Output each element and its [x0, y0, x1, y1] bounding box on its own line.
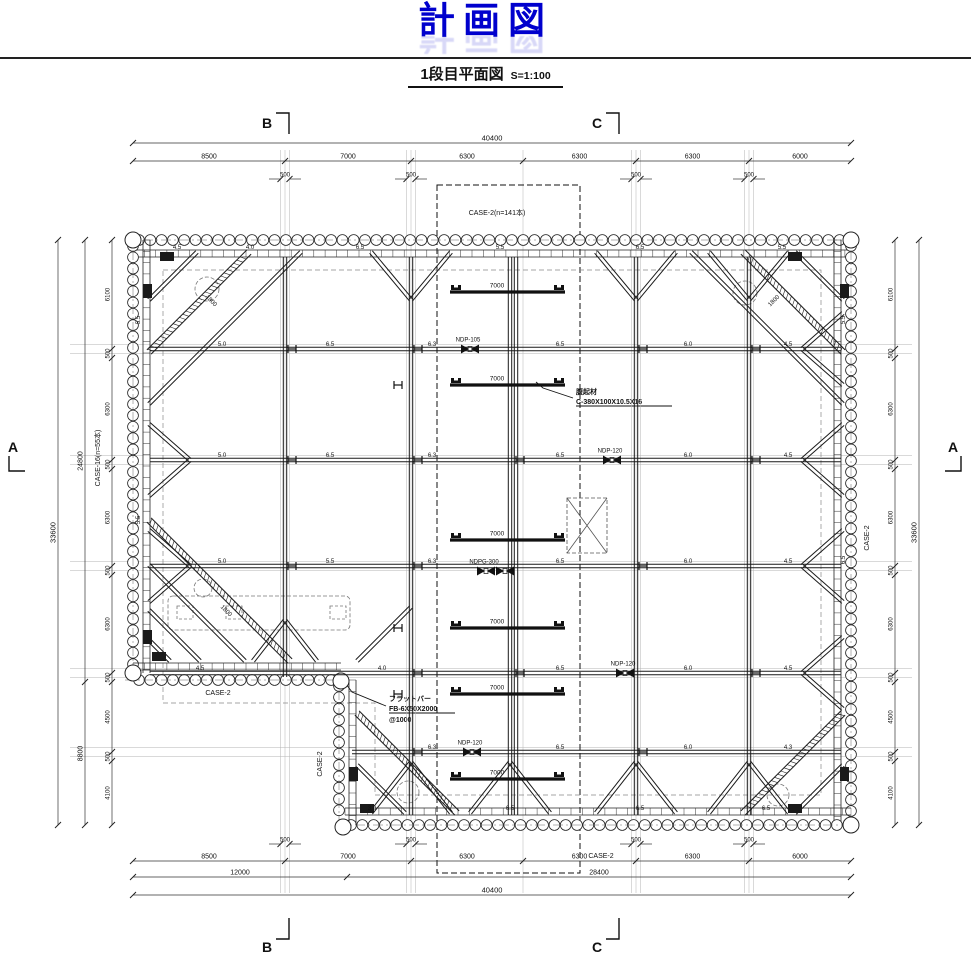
svg-text:6300: 6300 — [685, 854, 701, 861]
svg-text:6.5: 6.5 — [841, 555, 847, 564]
section-marker-c-top: C — [592, 115, 602, 131]
svg-text:4.3: 4.3 — [784, 745, 793, 751]
svg-text:6300: 6300 — [572, 854, 588, 861]
svg-text:6000: 6000 — [792, 854, 808, 861]
svg-text:8500: 8500 — [201, 154, 217, 161]
svg-text:NDP-120: NDP-120 — [458, 741, 483, 747]
svg-text:6.3: 6.3 — [428, 559, 437, 565]
channel-label-1: 腹起材 — [575, 387, 597, 396]
svg-text:5.5: 5.5 — [841, 315, 847, 324]
svg-text:500: 500 — [406, 838, 417, 844]
svg-text:500: 500 — [631, 838, 642, 844]
svg-text:500: 500 — [106, 751, 112, 762]
svg-text:6.5: 6.5 — [636, 245, 645, 251]
svg-text:6300: 6300 — [459, 854, 475, 861]
svg-text:6.3: 6.3 — [428, 453, 437, 459]
svg-text:NDP-105: NDP-105 — [456, 338, 481, 344]
svg-text:500: 500 — [889, 751, 895, 762]
case-label-bottom: CASE-2 — [588, 853, 613, 860]
svg-text:6300: 6300 — [889, 510, 895, 524]
svg-text:3.0: 3.0 — [368, 806, 377, 812]
svg-text:NDP-120: NDP-120 — [611, 662, 636, 668]
panel-labels: 4.54.06.55.56.55.55.06.56.36.56.04.55.06… — [136, 245, 847, 812]
svg-text:7000: 7000 — [490, 531, 505, 538]
svg-text:6.0: 6.0 — [684, 453, 693, 459]
svg-text:28400: 28400 — [589, 870, 609, 877]
svg-text:6300: 6300 — [106, 510, 112, 524]
svg-text:33600: 33600 — [49, 522, 58, 543]
case-label-top: CASE-2(n=141本) — [469, 208, 526, 217]
svg-text:6.5: 6.5 — [556, 666, 565, 672]
svg-text:4100: 4100 — [106, 786, 112, 800]
svg-text:6.5: 6.5 — [556, 342, 565, 348]
svg-text:6100: 6100 — [889, 287, 895, 301]
drawing-sheet: 計画図 計画図 1段目平面図S=1:100 B C B C A A CASE-2… — [0, 0, 971, 969]
svg-text:6.5: 6.5 — [326, 453, 335, 459]
section-bracket — [9, 456, 25, 471]
svg-text:4.5: 4.5 — [784, 559, 793, 565]
svg-text:6.5: 6.5 — [762, 806, 771, 812]
svg-text:6000: 6000 — [792, 154, 808, 161]
svg-text:4500: 4500 — [106, 710, 112, 724]
svg-text:6300: 6300 — [572, 154, 588, 161]
svg-text:4.0: 4.0 — [378, 666, 387, 672]
svg-text:500: 500 — [889, 565, 895, 576]
svg-text:40400: 40400 — [482, 886, 503, 895]
svg-text:NDP-120: NDP-120 — [598, 449, 623, 455]
svg-text:8500: 8500 — [201, 854, 217, 861]
section-marker-a-right: A — [948, 439, 958, 455]
svg-text:5.5: 5.5 — [136, 515, 142, 524]
svg-text:7000: 7000 — [340, 854, 356, 861]
section-bracket — [276, 113, 289, 134]
svg-text:6.0: 6.0 — [684, 666, 693, 672]
svg-text:6.5: 6.5 — [556, 745, 565, 751]
svg-text:6100: 6100 — [106, 287, 112, 301]
svg-text:5.5: 5.5 — [136, 315, 142, 324]
case-label-step-lower: CASE-2 — [205, 690, 230, 697]
svg-text:5.0: 5.0 — [218, 559, 227, 565]
svg-text:12000: 12000 — [230, 870, 250, 877]
svg-text:500: 500 — [889, 459, 895, 470]
svg-text:6.5: 6.5 — [556, 453, 565, 459]
svg-text:500: 500 — [631, 173, 642, 179]
svg-text:6.0: 6.0 — [684, 342, 693, 348]
svg-text:40400: 40400 — [482, 134, 503, 143]
case-label-left: CASE-16(n=55本) — [93, 430, 102, 487]
svg-text:500: 500 — [280, 173, 291, 179]
section-marker-a-left: A — [8, 439, 18, 455]
svg-text:7000: 7000 — [490, 685, 505, 692]
channel-label-2: C-380X100X10.5X16 — [576, 399, 642, 406]
svg-text:500: 500 — [106, 672, 112, 683]
svg-text:5.5: 5.5 — [326, 559, 335, 565]
svg-text:7000: 7000 — [490, 770, 505, 777]
flat-bar-label-1: フラットバー — [389, 695, 431, 703]
case-labels: CASE-2(n=141本) CASE-16(n=55本) CASE-2 CAS… — [93, 208, 871, 860]
svg-text:6300: 6300 — [459, 154, 475, 161]
svg-text:4.0: 4.0 — [246, 245, 255, 251]
svg-text:6300: 6300 — [685, 154, 701, 161]
svg-text:4.5: 4.5 — [173, 245, 182, 251]
case-label-right: CASE-2 — [864, 525, 871, 550]
section-bracket — [945, 456, 961, 471]
svg-text:7000: 7000 — [490, 619, 505, 626]
svg-text:6.3: 6.3 — [428, 745, 437, 751]
svg-text:5.5: 5.5 — [778, 245, 787, 251]
svg-text:6.0: 6.0 — [684, 745, 693, 751]
svg-text:5.0: 5.0 — [218, 453, 227, 459]
svg-text:500: 500 — [744, 838, 755, 844]
svg-text:6.0: 6.0 — [684, 559, 693, 565]
svg-text:4.5: 4.5 — [784, 666, 793, 672]
svg-text:33600: 33600 — [910, 522, 919, 543]
flat-bar-label-3: @1000 — [389, 717, 412, 724]
section-bracket — [606, 113, 619, 134]
svg-text:6300: 6300 — [106, 402, 112, 416]
svg-text:6.5: 6.5 — [326, 342, 335, 348]
svg-text:6300: 6300 — [889, 617, 895, 631]
deck-bars: 700070007000700070007000 — [450, 283, 565, 780]
svg-text:4.5: 4.5 — [196, 666, 205, 672]
svg-text:7000: 7000 — [490, 376, 505, 383]
svg-text:4500: 4500 — [889, 710, 895, 724]
svg-text:5.5: 5.5 — [496, 245, 505, 251]
section-marker-b-top: B — [262, 115, 272, 131]
plan-drawing: B C B C A A CASE-2(n=141本) CASE-16(n=55本… — [0, 0, 971, 969]
svg-text:500: 500 — [889, 672, 895, 683]
svg-text:5.0: 5.0 — [218, 342, 227, 348]
section-marker-c-bottom: C — [592, 939, 602, 955]
svg-text:4100: 4100 — [889, 786, 895, 800]
svg-text:500: 500 — [889, 348, 895, 359]
svg-text:4.5: 4.5 — [784, 342, 793, 348]
svg-text:4.5: 4.5 — [784, 453, 793, 459]
svg-text:7000: 7000 — [490, 283, 505, 290]
case-label-step-side: CASE-2 — [317, 751, 324, 776]
svg-text:24800: 24800 — [78, 451, 85, 471]
svg-text:6.5: 6.5 — [636, 806, 645, 812]
svg-text:1800: 1800 — [767, 294, 781, 308]
svg-text:500: 500 — [406, 173, 417, 179]
svg-text:6.5: 6.5 — [506, 806, 515, 812]
svg-text:6300: 6300 — [889, 402, 895, 416]
construction-lines — [70, 150, 912, 893]
section-bracket — [276, 918, 289, 939]
svg-text:500: 500 — [280, 838, 291, 844]
svg-text:500: 500 — [106, 348, 112, 359]
section-bracket — [606, 918, 619, 939]
section-marker-b-bottom: B — [262, 939, 272, 955]
svg-text:7000: 7000 — [340, 154, 356, 161]
svg-text:8800: 8800 — [78, 746, 85, 762]
svg-text:6300: 6300 — [106, 617, 112, 631]
svg-text:500: 500 — [106, 459, 112, 470]
svg-text:6.5: 6.5 — [556, 559, 565, 565]
svg-text:6.5: 6.5 — [356, 245, 365, 251]
svg-text:6.3: 6.3 — [428, 342, 437, 348]
svg-text:500: 500 — [744, 173, 755, 179]
svg-text:NDPG-300: NDPG-300 — [469, 560, 499, 566]
svg-text:500: 500 — [106, 565, 112, 576]
